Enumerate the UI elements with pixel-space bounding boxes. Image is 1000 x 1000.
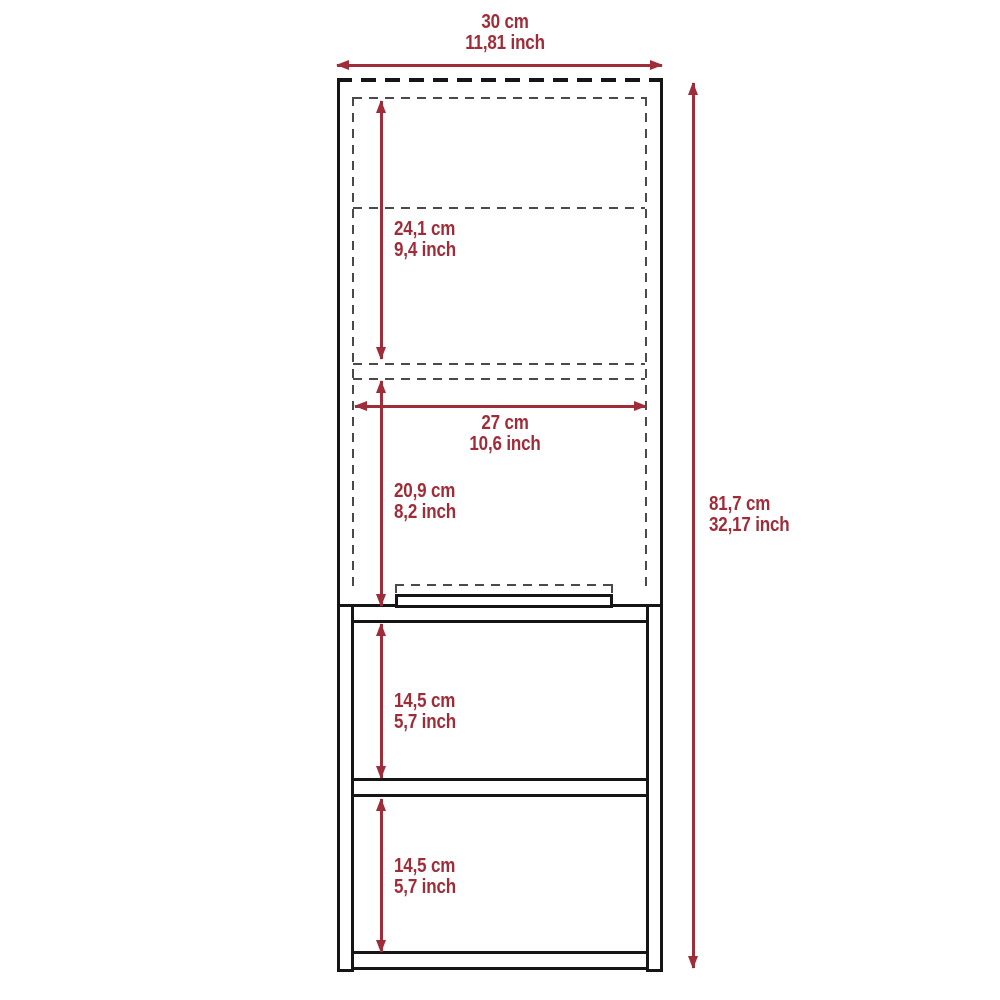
dim-label-upper-inner-height: 24,1 cm 9,4 inch [394,219,456,261]
dim-value-cm: 24,1 cm [394,219,456,240]
dim-line-upper-inner-height [380,101,383,359]
dim-value-cm: 30 cm [403,12,607,33]
dim-value-cm: 20,9 cm [394,481,456,502]
handle-hidden-edge-dashed [395,584,613,586]
top-edge-right-cap [649,78,663,82]
handle-hidden-edge-left-stub [395,584,397,594]
bottom-shelf [351,951,649,970]
dim-line-open-shelf-1 [380,624,383,778]
upper-cabinet-top-hidden-edge [337,78,663,82]
top-edge-left-cap [337,78,351,82]
hidden-shelf-line-middle-bottom [353,378,645,380]
door-outline-right-dashed [645,97,647,592]
dim-value-cm: 14,5 cm [394,856,456,877]
dim-value-cm: 81,7 cm [709,494,790,515]
dim-value-inch: 11,81 inch [403,33,607,54]
door-outline-left-dashed [352,97,354,592]
dim-value-inch: 10,6 inch [403,434,607,455]
cabinet-dimension-diagram: 30 cm 11,81 inch 81,7 cm 32,17 inch 24,1… [0,0,1000,1000]
dim-value-inch: 8,2 inch [394,502,456,523]
lower-top-panel-underside [354,620,646,623]
door-handle [395,594,613,608]
dim-label-open-shelf-1: 14,5 cm 5,7 inch [394,691,456,733]
dim-value-inch: 32,17 inch [709,515,790,536]
dim-line-lower-inner-height [380,381,383,606]
middle-shelf [351,778,649,797]
dim-value-inch: 5,7 inch [394,877,456,898]
dim-line-inner-width [355,405,646,408]
handle-hidden-edge-right-stub [611,584,613,594]
dim-label-open-shelf-2: 14,5 cm 5,7 inch [394,856,456,898]
upper-cabinet-outline [337,78,663,607]
dim-label-lower-inner-height: 20,9 cm 8,2 inch [394,481,456,523]
door-outline-top-dashed [353,97,647,99]
dim-label-overall-height: 81,7 cm 32,17 inch [709,494,790,536]
hidden-shelf-line-upper [353,207,645,209]
dim-value-inch: 5,7 inch [394,712,456,733]
hidden-shelf-line-middle-top [353,363,645,365]
dim-line-overall-width [337,64,662,67]
dim-value-cm: 14,5 cm [394,691,456,712]
dim-line-overall-height [692,83,695,968]
dim-value-cm: 27 cm [403,413,607,434]
dim-label-inner-width: 27 cm 10,6 inch [403,413,607,455]
dim-value-inch: 9,4 inch [394,240,456,261]
dim-label-overall-width: 30 cm 11,81 inch [403,12,607,54]
dim-line-open-shelf-2 [380,799,383,952]
